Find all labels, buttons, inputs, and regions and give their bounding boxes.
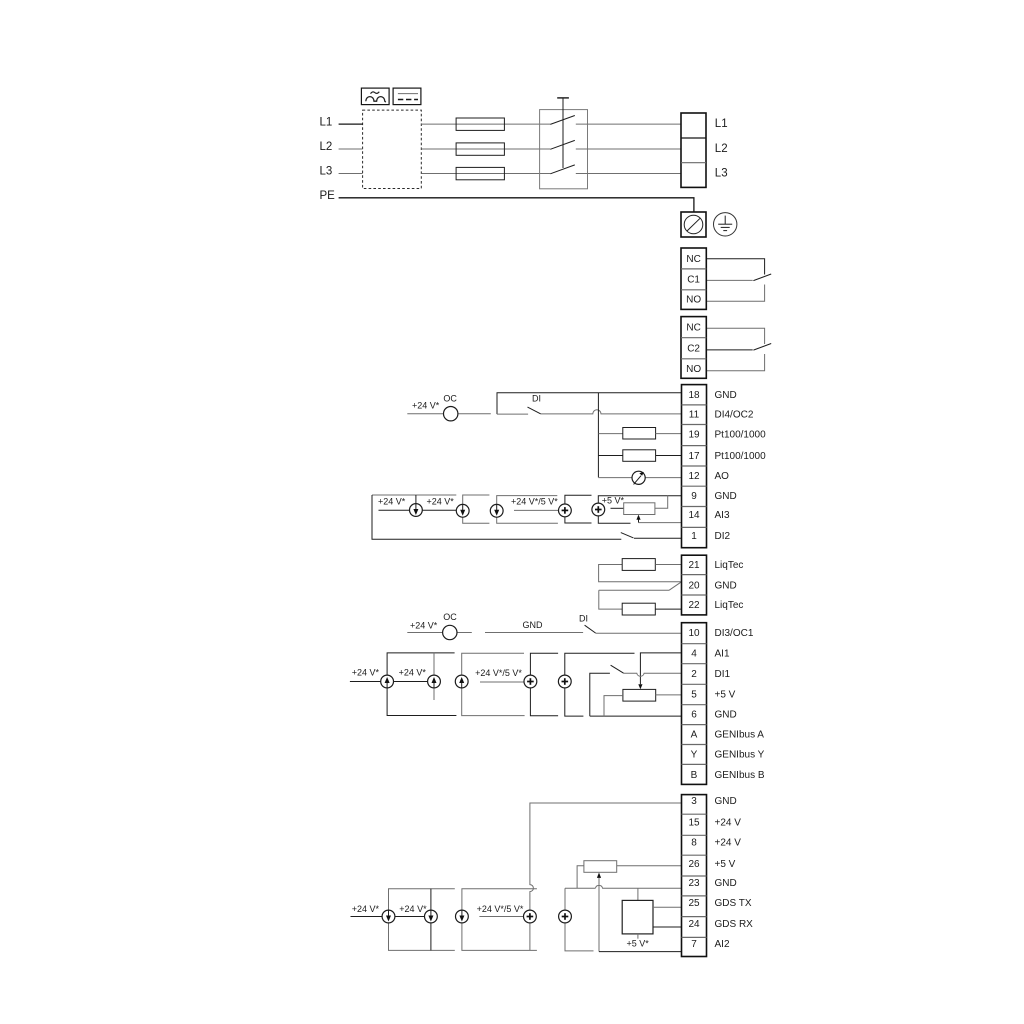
svg-text:+24 V*: +24 V* (410, 620, 438, 630)
svg-text:+24 V: +24 V (715, 838, 742, 849)
svg-text:8: 8 (691, 838, 697, 849)
svg-text:7: 7 (691, 939, 697, 950)
svg-text:NC: NC (686, 254, 700, 265)
svg-text:9: 9 (691, 491, 697, 502)
svg-text:19: 19 (688, 430, 700, 441)
svg-text:GND: GND (715, 491, 737, 502)
svg-text:AI3: AI3 (715, 510, 730, 521)
svg-text:GND: GND (715, 580, 737, 591)
svg-text:L1: L1 (715, 118, 728, 130)
svg-text:2: 2 (691, 669, 697, 680)
svg-text:GND: GND (715, 878, 737, 889)
svg-text:GND: GND (523, 620, 544, 630)
svg-text:C1: C1 (687, 274, 700, 285)
svg-text:B: B (691, 770, 698, 781)
svg-text:GDS RX: GDS RX (715, 919, 754, 930)
svg-text:4: 4 (691, 649, 697, 660)
svg-text:+24 V*: +24 V* (352, 904, 380, 914)
svg-text:20: 20 (688, 580, 700, 591)
svg-text:+24 V*: +24 V* (412, 401, 440, 411)
svg-text:12: 12 (688, 471, 700, 482)
svg-text:23: 23 (688, 878, 700, 889)
svg-text:C2: C2 (687, 343, 700, 354)
svg-text:22: 22 (688, 600, 700, 611)
svg-text:+24 V*: +24 V* (399, 667, 427, 677)
svg-text:PE: PE (320, 190, 336, 202)
svg-text:6: 6 (691, 710, 697, 721)
svg-text:LiqTec: LiqTec (715, 560, 744, 571)
svg-text:GENIbus B: GENIbus B (715, 770, 765, 781)
svg-text:+5 V*: +5 V* (602, 495, 625, 505)
svg-text:17: 17 (688, 451, 700, 462)
svg-text:+5 V*: +5 V* (627, 939, 650, 949)
svg-text:GND: GND (715, 796, 737, 807)
svg-text:21: 21 (688, 560, 700, 571)
svg-text:L3: L3 (715, 167, 728, 179)
svg-text:L3: L3 (320, 166, 333, 178)
svg-text:L1: L1 (320, 116, 333, 128)
svg-text:18: 18 (688, 390, 700, 401)
svg-text:+24 V*: +24 V* (352, 667, 380, 677)
svg-text:AI2: AI2 (715, 939, 730, 950)
svg-text:OC: OC (443, 394, 457, 404)
svg-text:GDS TX: GDS TX (715, 898, 752, 909)
svg-text:DI3/OC1: DI3/OC1 (715, 628, 754, 639)
svg-text:DI2: DI2 (715, 531, 731, 542)
svg-text:+5 V: +5 V (715, 859, 736, 870)
svg-text:GND: GND (715, 710, 737, 721)
svg-text:NO: NO (686, 364, 701, 375)
svg-text:L2: L2 (320, 141, 333, 153)
svg-text:Y: Y (691, 750, 698, 761)
svg-text:NC: NC (686, 322, 700, 333)
svg-text:OC: OC (443, 612, 457, 622)
svg-text:AO: AO (715, 471, 730, 482)
svg-text:24: 24 (688, 919, 700, 930)
svg-text:15: 15 (688, 818, 700, 829)
svg-text:GND: GND (715, 390, 737, 401)
svg-text:11: 11 (689, 410, 700, 421)
svg-text:DI: DI (579, 614, 588, 624)
svg-text:14: 14 (688, 510, 700, 521)
svg-text:DI: DI (532, 394, 541, 404)
svg-text:Pt100/1000: Pt100/1000 (715, 451, 767, 462)
svg-text:+24 V: +24 V (715, 818, 742, 829)
svg-text:+24 V*: +24 V* (427, 496, 455, 506)
svg-text:A: A (691, 730, 698, 741)
svg-text:5: 5 (691, 690, 697, 701)
svg-text:10: 10 (688, 628, 700, 639)
svg-text:+5 V: +5 V (715, 690, 736, 701)
svg-text:1: 1 (691, 531, 697, 542)
svg-text:+24 V*: +24 V* (378, 496, 406, 506)
svg-text:+24 V*/5 V*: +24 V*/5 V* (477, 904, 524, 914)
svg-text:L2: L2 (715, 143, 728, 155)
svg-text:GENIbus Y: GENIbus Y (715, 750, 765, 761)
svg-text:+24 V*/5 V*: +24 V*/5 V* (475, 668, 522, 678)
svg-text:NO: NO (686, 295, 701, 306)
svg-text:25: 25 (688, 898, 700, 909)
svg-text:Pt100/1000: Pt100/1000 (715, 430, 767, 441)
svg-text:+24 V*: +24 V* (399, 904, 427, 914)
svg-text:AI1: AI1 (715, 649, 730, 660)
svg-text:+24 V*/5 V*: +24 V*/5 V* (511, 496, 558, 506)
svg-text:GENIbus A: GENIbus A (715, 730, 765, 741)
svg-text:LiqTec: LiqTec (715, 600, 744, 611)
svg-text:DI1: DI1 (715, 669, 731, 680)
svg-text:26: 26 (688, 859, 700, 870)
svg-text:DI4/OC2: DI4/OC2 (715, 410, 754, 421)
svg-text:3: 3 (691, 796, 697, 807)
